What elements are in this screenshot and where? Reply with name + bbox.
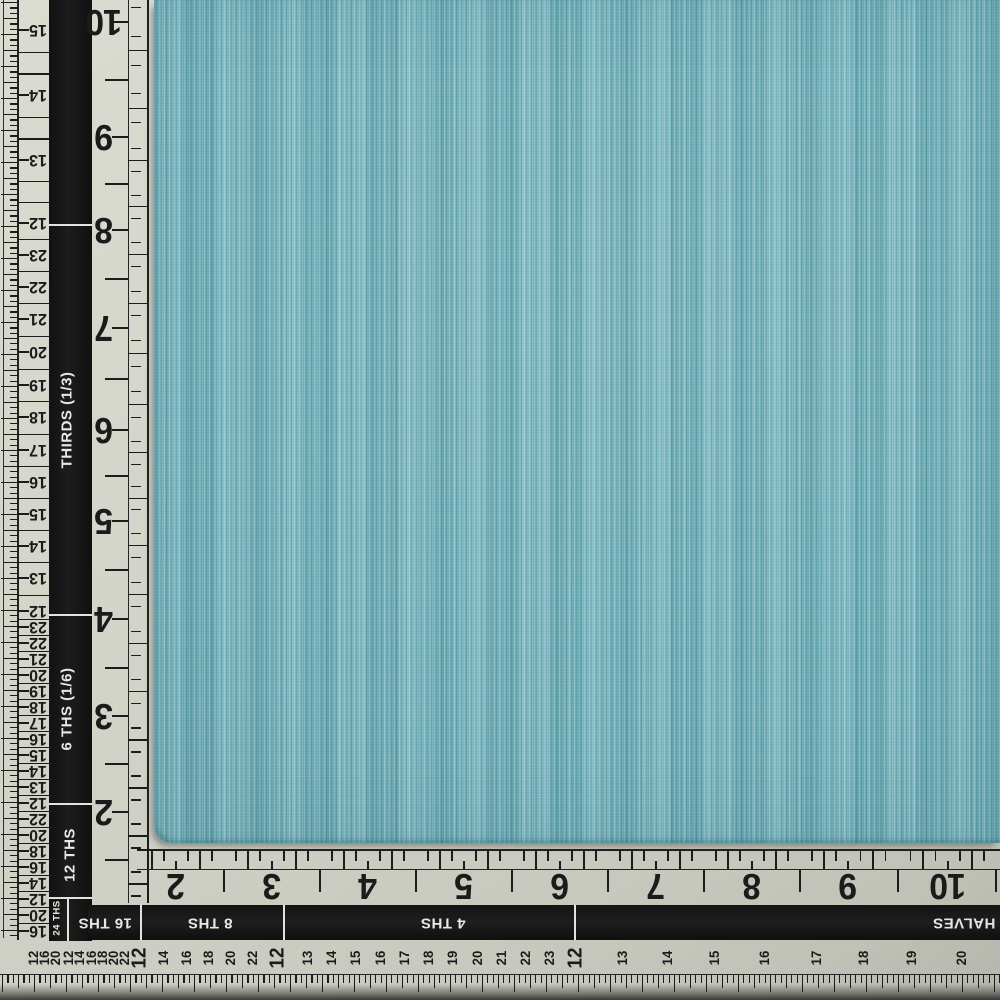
bottom-ruler-half-tick: [799, 869, 801, 892]
bottom-ruler-eighth-tick: [691, 851, 692, 861]
left-ruler-fine-tick: [1, 450, 18, 451]
bottom-ruler-fine-tick: [599, 975, 600, 983]
left-ruler-fine-tick: [10, 61, 18, 62]
bottom-ruler-fine-tick: [845, 975, 846, 983]
bottom-ruler-inch-number: 8: [743, 865, 761, 907]
left-ruler-fine-tick: [4, 626, 18, 627]
left-ruler-fine-tick: [10, 151, 18, 152]
left-ruler-eighth-tick: [131, 823, 141, 824]
bottom-ruler-half-tick: [995, 869, 997, 892]
left-ruler-band-label: 12 THS: [62, 828, 79, 882]
left-ruler-half-tick: [105, 183, 128, 185]
bottom-ruler-band-label: 16 THS: [78, 914, 132, 931]
left-ruler-fine-tick: [10, 727, 18, 728]
left-ruler-ladder-line: [18, 202, 49, 203]
left-ruler-fine-tick: [1, 130, 18, 131]
bottom-ruler-small-number: 17: [396, 951, 412, 966]
bottom-ruler-fine-tick: [647, 975, 648, 983]
left-ruler-quarter-tick: [128, 254, 148, 255]
bottom-ruler-fine-tick: [269, 975, 270, 983]
bottom-ruler-fine-tick: [55, 975, 56, 983]
left-ruler-fine-tick: [1, 226, 18, 227]
left-ruler-fine-tick: [10, 663, 18, 664]
bottom-ruler-fine-tick: [951, 975, 952, 983]
left-ruler-fine-tick: [1, 258, 18, 259]
bottom-ruler-fine-tick: [119, 975, 120, 983]
left-ruler-ladder-line: [18, 706, 29, 707]
left-ruler-fine-tick: [10, 823, 18, 824]
left-ruler-ladder-line: [18, 850, 29, 851]
left-ruler-fine-tick: [1, 418, 18, 419]
left-ruler-ladder-number: 15: [29, 504, 47, 524]
left-ruler-fine-tick: [10, 775, 18, 776]
bottom-ruler-fine-tick: [279, 975, 280, 983]
left-ruler-fine-tick: [4, 306, 18, 307]
bottom-ruler-half-tick: [511, 869, 513, 892]
bottom-ruler-eighth-tick: [983, 851, 984, 861]
left-ruler-fine-tick: [4, 786, 18, 787]
left-ruler-quarter-tick: [128, 452, 148, 453]
left-ruler-ladder-line: [18, 882, 29, 883]
left-ruler-fine-tick: [10, 909, 18, 910]
left-ruler-fine-tick: [10, 71, 18, 72]
bottom-ruler-eighth-tick: [885, 851, 886, 861]
bottom-ruler-fine-tick: [781, 975, 782, 983]
bottom-ruler-quarter-tick: [971, 851, 972, 869]
bottom-ruler-fine-tick: [525, 975, 526, 983]
left-ruler-band-separator: [49, 614, 92, 616]
bottom-ruler-fine-tick: [183, 975, 184, 983]
left-ruler-eighth-tick: [131, 727, 141, 728]
bottom-ruler-eighth-tick: [451, 851, 452, 861]
left-ruler-fine-tick: [1, 866, 18, 867]
bottom-ruler-quarter-tick: [247, 851, 248, 869]
left-ruler-quarter-tick: [128, 160, 148, 161]
left-ruler-fine-tick: [10, 317, 18, 318]
left-ruler-eighth-tick: [131, 171, 141, 172]
left-ruler-ladder-number: 21: [29, 309, 47, 329]
left-ruler-band-separator: [49, 897, 92, 899]
bottom-ruler-fine-tick: [813, 975, 814, 983]
left-ruler-fine-tick: [10, 237, 18, 238]
bottom-ruler-eighth-tick: [763, 851, 764, 861]
left-ruler-ladder-number: 18: [29, 407, 47, 427]
left-ruler-fine-tick: [10, 829, 18, 830]
left-ruler-fine-tick: [1, 706, 18, 707]
bottom-ruler-fine-tick: [231, 975, 232, 983]
left-ruler-fine-tick: [10, 733, 18, 734]
left-ruler-ladder-line: [18, 818, 29, 819]
bottom-ruler-fine-tick: [439, 975, 440, 983]
bottom-ruler-fine-tick: [77, 975, 78, 983]
bottom-ruler-eighth-tick: [787, 851, 788, 861]
left-ruler-quarter-tick: [128, 206, 148, 207]
left-ruler-fine-tick: [10, 205, 18, 206]
left-ruler-eighth-tick: [131, 775, 141, 776]
left-ruler-fine-tick: [10, 845, 18, 846]
left-ruler-fine-tick: [10, 685, 18, 686]
bottom-ruler-fine-tick: [167, 975, 168, 983]
left-ruler-ladder-line: [18, 449, 29, 450]
left-ruler-fine-tick: [4, 402, 18, 403]
bottom-ruler-eighth-tick: [355, 851, 356, 861]
bottom-ruler-fine-tick: [989, 975, 990, 983]
left-ruler-inch-number: 5: [95, 500, 113, 542]
bottom-ruler-small-number: 12: [565, 948, 588, 969]
left-ruler-fine-tick: [10, 599, 18, 600]
bottom-ruler-fine-tick: [317, 975, 318, 983]
bottom-ruler-fine-tick: [477, 975, 478, 983]
left-ruler-fine-tick: [10, 183, 18, 184]
bottom-ruler-eighth-tick: [475, 851, 476, 861]
left-ruler-ladder-line: [18, 930, 29, 931]
left-ruler-quarter-tick: [128, 787, 148, 788]
left-ruler-eighth-tick: [131, 895, 141, 896]
left-ruler-fine-tick: [4, 690, 18, 691]
left-ruler-eighth-tick: [131, 93, 141, 94]
left-ruler-inch-number: 8: [95, 209, 113, 251]
bottom-ruler-fine-tick: [125, 975, 126, 983]
left-ruler-fine-tick: [10, 29, 18, 30]
bottom-ruler-band-separator: [140, 905, 142, 940]
bottom-ruler-fine-tick: [327, 975, 328, 983]
bottom-ruler-fine-tick: [413, 975, 414, 983]
left-ruler-fine-tick: [10, 647, 18, 648]
left-ruler-fine-tick: [10, 93, 18, 94]
left-ruler-fine-tick: [10, 103, 18, 104]
bottom-ruler-eighth-tick: [427, 851, 428, 861]
left-ruler-ladder-line: [18, 770, 29, 771]
left-ruler-ladder-line: [18, 562, 49, 563]
left-ruler-fine-tick: [4, 882, 18, 883]
left-ruler-fine-tick: [10, 807, 18, 808]
left-ruler-ladder-line: [18, 434, 49, 435]
left-ruler-fine-tick: [1, 546, 18, 547]
left-ruler-ladder-line: [18, 658, 29, 659]
bottom-ruler-fine-tick: [205, 975, 206, 983]
left-ruler-fine-tick: [10, 855, 18, 856]
left-ruler-fine-tick: [10, 765, 18, 766]
left-ruler-fine-tick: [1, 322, 18, 323]
bottom-ruler-small-number: 22: [517, 951, 533, 966]
bottom-ruler-eighth-tick: [715, 851, 716, 861]
left-ruler-fine-tick: [10, 23, 18, 24]
left-ruler-fine-tick: [10, 519, 18, 520]
bottom-ruler-fine-tick: [541, 975, 542, 983]
bottom-ruler-small-number: 19: [444, 951, 460, 966]
bottom-ruler-quarter-tick: [727, 851, 728, 869]
left-ruler-quarter-tick: [128, 108, 148, 109]
left-ruler-fine-tick: [10, 461, 18, 462]
bottom-ruler-eighth-tick: [211, 851, 212, 861]
left-ruler-fine-tick: [10, 471, 18, 472]
bottom-ruler-fine-tick: [557, 975, 558, 983]
left-ruler-eighth-tick: [131, 703, 141, 704]
fabric-swatch: [154, 0, 1000, 843]
left-ruler-fine-tick: [10, 797, 18, 798]
bottom-ruler-fine-tick: [285, 975, 286, 983]
bottom-ruler-fine-tick: [685, 975, 686, 983]
left-ruler-ladder-line: [18, 545, 29, 546]
left-ruler-inch-number: 9: [95, 116, 113, 158]
left-ruler-fine-tick: [4, 722, 18, 723]
left-ruler-fine-tick: [10, 343, 18, 344]
left-ruler-quarter-tick: [128, 594, 148, 595]
left-ruler-inch-tick: [112, 715, 128, 717]
bottom-ruler-fine-tick: [567, 975, 568, 983]
left-ruler-fine-tick: [10, 791, 18, 792]
left-ruler-fine-tick: [10, 77, 18, 78]
left-ruler-ladder-line: [18, 401, 49, 402]
left-ruler-fine-tick: [10, 679, 18, 680]
left-ruler-ladder-line: [18, 834, 29, 835]
left-ruler-ladder-number: 23: [29, 245, 47, 265]
bottom-ruler-small-number: 13: [299, 951, 315, 966]
bottom-ruler-eighth-tick: [259, 851, 260, 861]
left-ruler-fine-tick: [10, 45, 18, 46]
left-ruler-eighth-tick: [131, 655, 141, 656]
left-ruler-ladder-line: [18, 239, 49, 240]
left-ruler-quarter-tick: [128, 545, 148, 546]
left-ruler-fine-tick: [10, 311, 18, 312]
left-ruler-fine-tick: [10, 413, 18, 414]
left-ruler-ladder-line: [18, 29, 29, 30]
bottom-ruler-fine-tick: [61, 975, 62, 983]
left-ruler-fine-tick: [4, 818, 18, 819]
left-ruler-inch-number: 3: [95, 695, 113, 737]
fabric-on-ruler-photo: 1514131223222120191817161514131223222120…: [0, 0, 1000, 1000]
left-ruler-quarter-tick: [128, 50, 148, 51]
left-ruler-quarter-tick: [128, 303, 148, 304]
left-ruler-fine-tick: [10, 925, 18, 926]
bottom-ruler-quarter-tick: [439, 851, 440, 869]
left-ruler-ladder-number: 14: [29, 85, 47, 105]
bottom-ruler-fine-tick: [935, 975, 936, 983]
bottom-ruler-fine-tick: [359, 975, 360, 983]
bottom-ruler-eighth-tick: [811, 851, 812, 861]
left-ruler-fine-tick: [10, 189, 18, 190]
left-ruler-ladder-line: [18, 722, 29, 723]
bottom-ruler-fine-tick: [237, 975, 238, 983]
bottom-ruler-eighth-tick: [667, 851, 668, 861]
bottom-ruler-fine-tick: [39, 975, 40, 983]
bottom-ruler-fine-tick: [103, 975, 104, 983]
bottom-ruler-half-tick: [607, 869, 609, 892]
left-ruler-ladder-line: [18, 222, 29, 223]
left-ruler-fine-tick: [10, 295, 18, 296]
bottom-ruler-fine-tick: [487, 975, 488, 983]
left-ruler-fine-tick: [10, 167, 18, 168]
bottom-ruler-eighth-tick: [619, 851, 620, 861]
left-ruler-band-label: THIRDS (1/3): [59, 372, 76, 469]
bottom-ruler-fine-tick: [733, 975, 734, 983]
left-ruler-fine-tick: [4, 434, 18, 435]
left-ruler-fine-tick: [1, 898, 18, 899]
bottom-ruler-fine-tick: [605, 975, 606, 983]
left-ruler-eighth-tick: [131, 266, 141, 267]
bottom-ruler-eighth-tick: [307, 851, 308, 861]
bottom-ruler-half-tick: [703, 869, 705, 892]
bottom-ruler-quarter-tick: [199, 851, 200, 869]
left-ruler-fine-tick: [10, 615, 18, 616]
bottom-ruler-small-number: 15: [706, 951, 722, 966]
bottom-ruler-fine-tick: [855, 975, 856, 983]
left-ruler-fine-tick: [10, 871, 18, 872]
left-ruler-fine-tick: [10, 391, 18, 392]
left-ruler-fine-tick: [10, 493, 18, 494]
left-ruler-fine-tick: [10, 887, 18, 888]
bottom-ruler-fine-tick: [215, 975, 216, 983]
left-ruler-fine-tick: [1, 34, 18, 35]
left-ruler-fine-tick: [10, 557, 18, 558]
bottom-ruler-half-tick: [223, 869, 225, 892]
left-ruler-eighth-tick: [131, 391, 141, 392]
left-ruler-ladder-line: [18, 866, 29, 867]
bottom-ruler-fine-tick: [45, 975, 46, 983]
left-ruler-inch-tick: [112, 520, 128, 522]
left-ruler-eighth-tick: [131, 122, 141, 123]
bottom-ruler-fine-tick: [839, 975, 840, 983]
left-ruler-eighth-tick: [131, 557, 141, 558]
left-ruler-eighth-tick: [131, 218, 141, 219]
left-ruler-fine-tick: [10, 231, 18, 232]
left-ruler-fine-tick: [4, 754, 18, 755]
bottom-ruler-small-number: 20: [469, 951, 485, 966]
left-ruler-ladder-number: 15: [29, 20, 47, 40]
left-ruler-eighth-tick: [131, 582, 141, 583]
left-ruler-eighth-tick: [131, 417, 141, 418]
bottom-ruler-fine-tick: [589, 975, 590, 983]
bottom-ruler-fine-tick: [29, 975, 30, 983]
left-ruler-fine-tick: [1, 514, 18, 515]
bottom-ruler-fine-tick: [765, 975, 766, 983]
left-ruler-fine-tick: [10, 407, 18, 408]
left-ruler-fine-tick: [10, 263, 18, 264]
bottom-ruler-small-number: 14: [155, 951, 171, 966]
left-ruler-band-label: 24 THS: [52, 900, 63, 935]
bottom-ruler-fine-tick: [199, 975, 200, 983]
bottom-ruler-inch-number: 4: [359, 865, 377, 907]
bottom-ruler-quarter-tick: [922, 851, 923, 869]
left-ruler-half-tick: [105, 475, 128, 477]
left-ruler-inch-tick: [112, 229, 128, 231]
bottom-ruler-half-tick: [897, 869, 899, 892]
left-ruler-fine-tick: [1, 834, 18, 835]
left-ruler-eighth-tick: [131, 366, 141, 367]
left-ruler-fine-tick: [1, 674, 18, 675]
left-ruler-fine-tick: [10, 87, 18, 88]
bottom-ruler-band-separator: [283, 905, 285, 940]
bottom-ruler-fine-tick: [957, 975, 958, 983]
left-ruler-half-tick: [105, 378, 128, 380]
bottom-ruler-quarter-tick: [151, 851, 152, 869]
bottom-ruler-eighth-tick: [643, 851, 644, 861]
bottom-ruler-band-label: 8 THS: [187, 914, 232, 931]
left-ruler-fine-tick: [4, 658, 18, 659]
bottom-ruler-fine-tick: [775, 975, 776, 983]
left-ruler-fine-rail: [3, 0, 4, 938]
left-ruler-fraction-band: [49, 0, 92, 941]
left-ruler-inch-number: 2: [95, 791, 113, 833]
bottom-ruler-fine-tick: [861, 975, 862, 983]
bottom-ruler-fine-tick: [573, 975, 574, 983]
bottom-ruler-fine-tick: [343, 975, 344, 983]
bottom-ruler-fine-tick: [311, 975, 312, 983]
bottom-ruler-fine-tick: [637, 975, 638, 983]
bottom-ruler-fine-tick: [663, 975, 664, 983]
left-ruler-fine-tick: [10, 903, 18, 904]
left-ruler-ladder-line: [18, 159, 29, 160]
left-ruler-quarter-tick: [128, 643, 148, 644]
left-ruler-fine-tick: [10, 109, 18, 110]
bottom-ruler-half-tick: [319, 869, 321, 892]
left-ruler-ladder-number: 16: [29, 472, 47, 492]
left-ruler-ladder-number: 13: [29, 150, 47, 170]
left-ruler-ladder-line: [18, 369, 49, 370]
left-ruler-inch-tick: [112, 327, 128, 329]
bottom-ruler-fine-tick: [551, 975, 552, 983]
left-ruler-fine-tick: [1, 482, 18, 483]
bottom-ruler-fine-tick: [423, 975, 424, 983]
bottom-ruler-small-number: 13: [614, 951, 630, 966]
bottom-ruler-fine-tick: [445, 975, 446, 983]
left-ruler-eighth-tick: [131, 340, 141, 341]
left-ruler-fine-tick: [10, 349, 18, 350]
left-ruler-fine-tick: [10, 221, 18, 222]
bottom-ruler-small-number: 14: [323, 951, 339, 966]
bottom-ruler-fine-tick: [349, 975, 350, 983]
bottom-ruler-inch-number: 5: [455, 865, 473, 907]
left-ruler-fine-tick: [4, 82, 18, 83]
left-ruler-fine-tick: [10, 813, 18, 814]
left-ruler-ladder-line: [18, 336, 49, 337]
left-ruler-band-label: 6 THS (1/6): [59, 667, 76, 750]
left-ruler-ladder-line: [18, 181, 49, 182]
left-ruler-fine-tick: [1, 290, 18, 291]
left-ruler-fine-tick: [10, 333, 18, 334]
left-ruler-fine-tick: [10, 13, 18, 14]
bottom-ruler-small-number: 16: [756, 951, 772, 966]
left-ruler-fine-tick: [10, 119, 18, 120]
left-ruler-eighth-tick: [131, 242, 141, 243]
left-ruler-fine-tick: [4, 338, 18, 339]
bottom-ruler-fine-tick: [535, 975, 536, 983]
left-ruler-ladder-line: [18, 898, 29, 899]
bottom-ruler-fine-tick: [519, 975, 520, 983]
left-ruler-fine-tick: [10, 173, 18, 174]
left-ruler-ladder-number: 19: [29, 375, 47, 395]
bottom-ruler-eighth-tick: [835, 851, 836, 861]
left-ruler-fine-tick: [10, 695, 18, 696]
left-ruler-fine-tick: [10, 199, 18, 200]
left-ruler-ladder-line: [18, 610, 29, 611]
left-ruler-fine-tick: [10, 503, 18, 504]
left-ruler-fine-tick: [1, 2, 18, 3]
left-ruler-half-tick: [105, 278, 128, 280]
left-ruler-fine-tick: [4, 274, 18, 275]
bottom-ruler-eighth-tick: [959, 851, 960, 861]
bottom-ruler-fine-tick: [471, 975, 472, 983]
bottom-ruler-small-number: 18: [420, 951, 436, 966]
left-ruler-fine-tick: [4, 530, 18, 531]
left-ruler-ladder-line: [18, 577, 29, 578]
bottom-ruler-eighth-tick: [283, 851, 284, 861]
bottom-ruler-quarter-tick: [775, 851, 776, 869]
left-ruler-ladder-number: 17: [29, 440, 47, 460]
bottom-ruler-eighth-tick: [523, 851, 524, 861]
left-ruler-ladder-line: [18, 351, 29, 352]
bottom-ruler-band-separator: [574, 905, 576, 940]
